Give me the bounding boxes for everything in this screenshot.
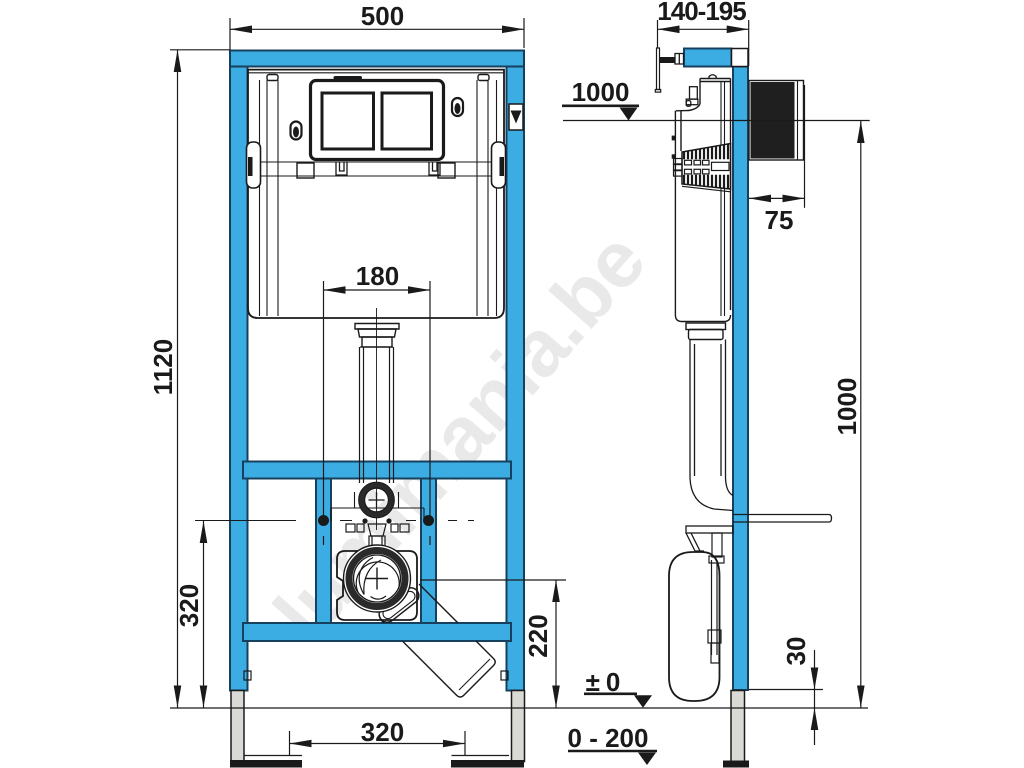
svg-text:320: 320 bbox=[361, 717, 404, 747]
svg-text:320: 320 bbox=[174, 584, 204, 627]
svg-text:500: 500 bbox=[361, 1, 404, 31]
svg-text:±0: ±0 bbox=[586, 667, 627, 697]
svg-text:140-195: 140-195 bbox=[657, 0, 746, 26]
svg-text:75: 75 bbox=[765, 205, 794, 235]
svg-text:1000: 1000 bbox=[832, 378, 862, 436]
svg-text:30: 30 bbox=[781, 637, 811, 666]
svg-text:0 - 200: 0 - 200 bbox=[568, 723, 649, 753]
svg-text:220: 220 bbox=[523, 614, 553, 657]
svg-text:1000: 1000 bbox=[572, 77, 630, 107]
svg-text:1120: 1120 bbox=[148, 339, 178, 395]
svg-text:180: 180 bbox=[356, 261, 399, 291]
